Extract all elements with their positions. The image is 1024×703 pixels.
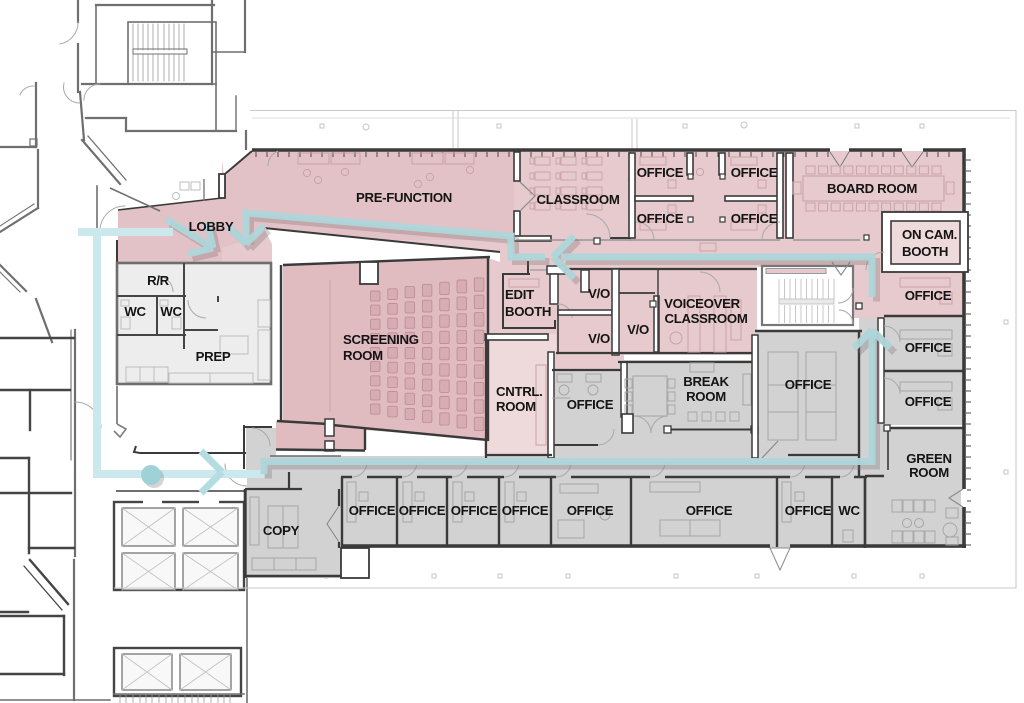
svg-text:EDIT: EDIT — [505, 287, 534, 302]
svg-text:PREP: PREP — [196, 349, 231, 364]
svg-text:OFFICE: OFFICE — [567, 503, 614, 518]
svg-text:VOICEOVER: VOICEOVER — [664, 296, 740, 311]
svg-text:BOOTH: BOOTH — [902, 244, 948, 259]
svg-text:COPY: COPY — [263, 523, 300, 538]
svg-text:PRE-FUNCTION: PRE-FUNCTION — [356, 190, 452, 205]
svg-text:OFFICE: OFFICE — [502, 503, 549, 518]
svg-text:OFFICE: OFFICE — [637, 211, 684, 226]
svg-text:ROOM: ROOM — [909, 465, 949, 480]
svg-text:WC: WC — [124, 304, 146, 319]
svg-text:BREAK: BREAK — [683, 374, 729, 389]
svg-text:OFFICE: OFFICE — [637, 165, 684, 180]
svg-text:OFFICE: OFFICE — [785, 503, 832, 518]
svg-text:SCREENING: SCREENING — [343, 332, 419, 347]
svg-text:BOARD ROOM: BOARD ROOM — [827, 181, 917, 196]
svg-text:GREEN: GREEN — [906, 451, 951, 466]
svg-text:OFFICE: OFFICE — [451, 503, 498, 518]
svg-text:OFFICE: OFFICE — [686, 503, 733, 518]
svg-text:OFFICE: OFFICE — [567, 397, 614, 412]
svg-text:LOBBY: LOBBY — [189, 219, 234, 234]
svg-text:ROOM: ROOM — [686, 389, 726, 404]
svg-text:ON CAM.: ON CAM. — [902, 227, 957, 242]
svg-text:OFFICE: OFFICE — [349, 503, 396, 518]
svg-text:V/O: V/O — [588, 286, 610, 301]
svg-text:OFFICE: OFFICE — [905, 288, 952, 303]
svg-text:ROOM: ROOM — [496, 399, 536, 414]
svg-text:WC: WC — [160, 304, 182, 319]
svg-text:V/O: V/O — [627, 322, 649, 337]
svg-text:OFFICE: OFFICE — [399, 503, 446, 518]
svg-text:CLASSROOM: CLASSROOM — [664, 311, 747, 326]
svg-text:OFFICE: OFFICE — [785, 377, 832, 392]
svg-text:CNTRL.: CNTRL. — [496, 384, 543, 399]
svg-text:OFFICE: OFFICE — [905, 394, 952, 409]
svg-text:BOOTH: BOOTH — [505, 304, 551, 319]
svg-text:V/O: V/O — [588, 331, 610, 346]
svg-text:OFFICE: OFFICE — [731, 165, 778, 180]
svg-text:OFFICE: OFFICE — [905, 340, 952, 355]
svg-text:WC: WC — [838, 503, 860, 518]
svg-text:R/R: R/R — [147, 273, 170, 288]
svg-text:ROOM: ROOM — [343, 348, 383, 363]
svg-text:CLASSROOM: CLASSROOM — [536, 192, 619, 207]
svg-text:OFFICE: OFFICE — [731, 211, 778, 226]
